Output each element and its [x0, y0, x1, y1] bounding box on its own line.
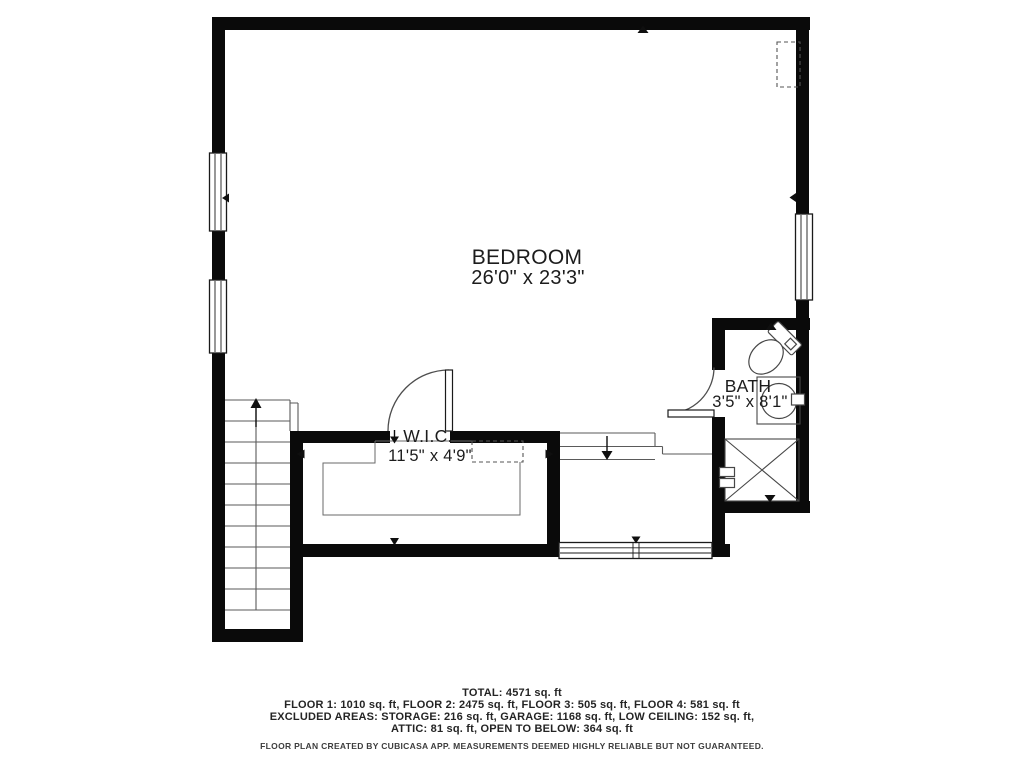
window-right [796, 214, 813, 300]
window-left-lower [210, 280, 227, 353]
bedroom-label: BEDROOM [472, 247, 583, 268]
bedroom-dimensions: 26'0" x 23'3" [471, 268, 585, 288]
footer-excluded-1: EXCLUDED AREAS: STORAGE: 216 sq. ft, GAR… [0, 711, 1024, 723]
shower-icon [720, 439, 800, 501]
toilet-icon [740, 321, 802, 383]
footer-floors: FLOOR 1: 1010 sq. ft, FLOOR 2: 2475 sq. … [0, 699, 1024, 711]
wic-label: W.I.C. [403, 428, 452, 446]
floor-plan-canvas: BEDROOM 26'0" x 23'3" W.I.C. 11'5" x 4'9… [0, 0, 1024, 768]
bath-dimensions: 3'5" x 8'1" [712, 394, 787, 411]
stairs-up-arrow [251, 398, 262, 427]
wic-door-swing [388, 370, 453, 431]
footer-disclaimer: FLOOR PLAN CREATED BY CUBICASA APP. MEAS… [0, 741, 1024, 751]
wall-top [212, 17, 810, 30]
floor-plan-drawing [0, 0, 1024, 768]
wall-bath-west [712, 318, 725, 557]
stairs-down-arrow [602, 436, 613, 460]
bath-door-swing [668, 368, 714, 418]
wall-stairwell-east [290, 431, 303, 642]
footer-total: TOTAL: 4571 sq. ft [0, 687, 1024, 699]
staircase-main [225, 398, 298, 610]
staircase-landing [560, 433, 712, 460]
wall-bottom-left [212, 629, 303, 642]
window-bottom [559, 543, 712, 559]
marker-right-wall [790, 193, 797, 202]
wic-dashed-area [472, 441, 523, 462]
footer-excluded-2: ATTIC: 81 sq. ft, OPEN TO BELOW: 364 sq.… [0, 723, 1024, 735]
wic-dimensions: 11'5" x 4'9" [388, 448, 472, 465]
wall-wic-east [547, 431, 560, 557]
window-left-upper [210, 153, 227, 231]
wall-bath-north [712, 318, 810, 330]
wall-bath-south [712, 501, 810, 513]
